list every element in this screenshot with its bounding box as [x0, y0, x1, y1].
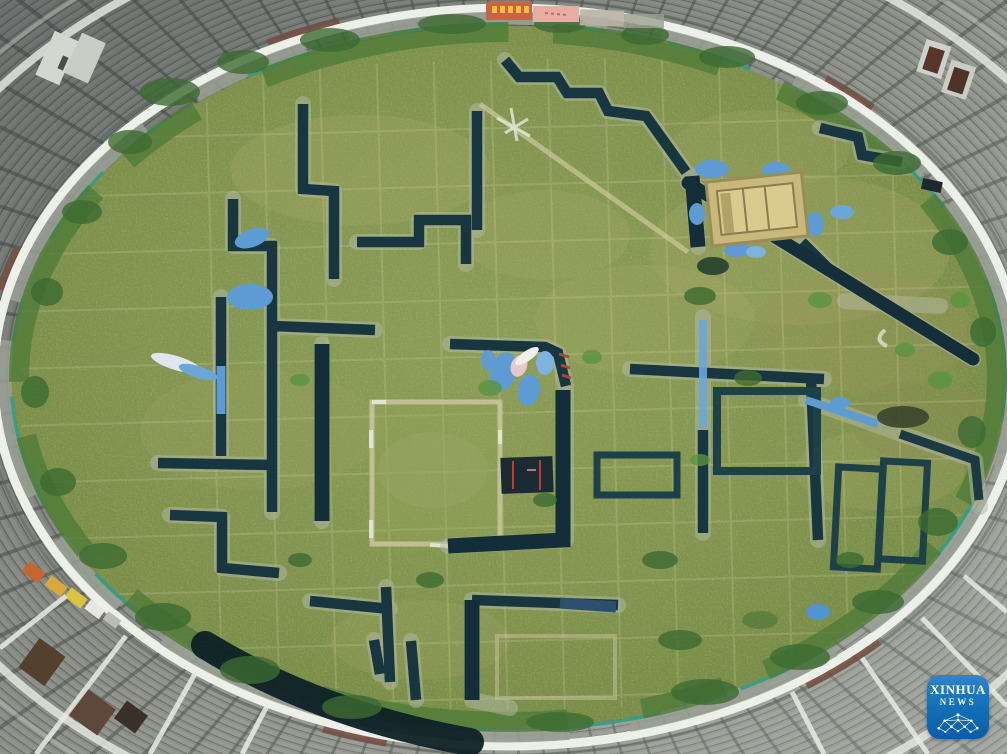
- xinhua-news-watermark: XINHUA NEWS: [927, 675, 989, 739]
- xinhua-sub-text: NEWS: [940, 697, 977, 708]
- stadium-aerial-photo: XINHUA NEWS: [0, 0, 1007, 754]
- central-platform: [371, 402, 500, 546]
- xinhua-brand-text: XINHUA: [930, 683, 986, 697]
- pink-building: [533, 6, 579, 22]
- excavation-pit: [706, 172, 808, 246]
- roof-huts-bottom-left: [18, 638, 148, 735]
- puddle: [877, 406, 929, 428]
- stand-structures-top-left: [35, 31, 105, 85]
- work-tent: [500, 456, 553, 494]
- stadium-scene: [0, 0, 1007, 754]
- network-globe-icon: [935, 711, 981, 735]
- puddle: [697, 257, 729, 275]
